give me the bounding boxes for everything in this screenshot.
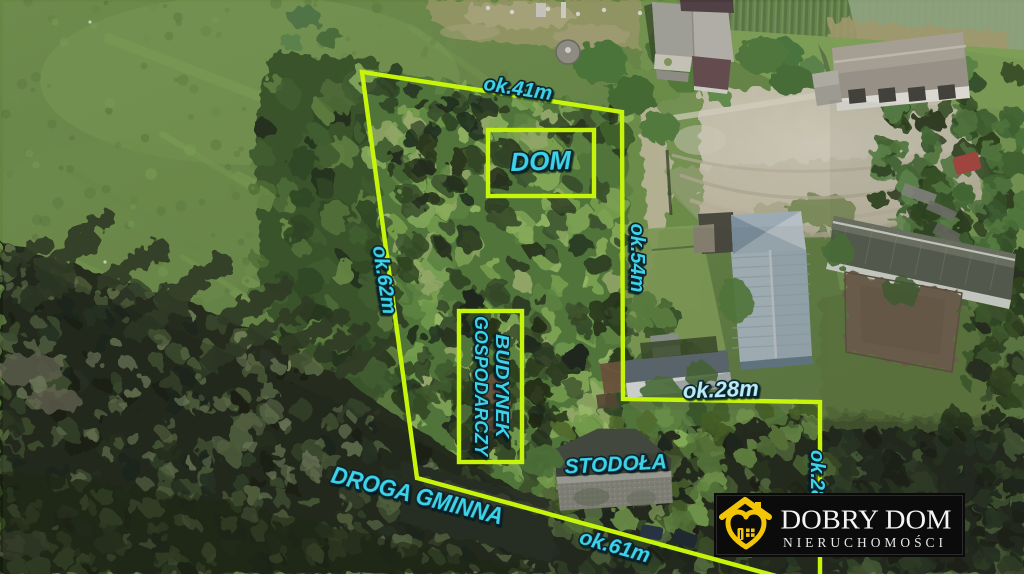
svg-text:ok.54m: ok.54m (626, 224, 648, 293)
svg-text:GOSPODARCZY: GOSPODARCZY (471, 316, 491, 458)
svg-text:DOBRY DOM: DOBRY DOM (781, 505, 952, 535)
svg-text:DOM: DOM (510, 145, 573, 177)
svg-text:BUDYNEK: BUDYNEK (492, 334, 512, 440)
svg-text:NIERUCHOMOŚCI: NIERUCHOMOŚCI (783, 535, 947, 550)
svg-text:ok.28m: ok.28m (682, 376, 759, 404)
